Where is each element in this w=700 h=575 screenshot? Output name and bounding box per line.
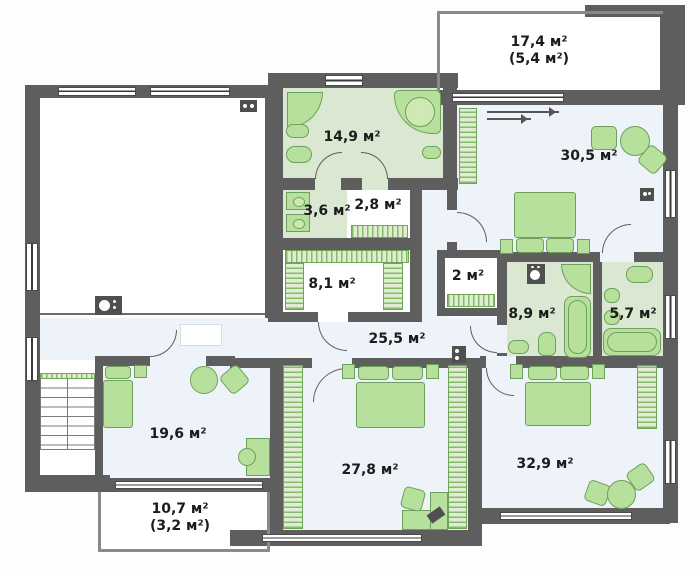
window: [452, 93, 564, 102]
wardrobe: [448, 365, 467, 529]
nightstand-icon: [426, 364, 439, 379]
boiler-icon: [95, 296, 122, 315]
balcony-parapet: [98, 549, 270, 552]
wall: [95, 363, 103, 480]
door-gap: [497, 325, 507, 353]
wardrobe-shelf: [447, 294, 495, 307]
sink-icon: [422, 146, 441, 159]
wall: [265, 85, 283, 318]
wardrobe-shelf: [285, 250, 409, 263]
washer-icon: [527, 264, 545, 284]
door-gap: [315, 178, 341, 190]
balcony-parapet: [267, 492, 270, 552]
wall: [437, 250, 445, 316]
balcony-parapet: [437, 11, 663, 14]
room-label-balcony-bottom: 10,7 м²: [152, 501, 209, 517]
nightstand-icon: [577, 239, 590, 254]
wall: [270, 363, 283, 530]
window: [262, 534, 422, 542]
floor-plan: 14,9 м² 3,6 м² 2,8 м² 8,1 м² 17,4 м² (5,…: [0, 0, 700, 575]
window: [665, 170, 676, 218]
bathtub-icon: [603, 328, 661, 356]
hall-floor: [40, 318, 497, 360]
wall: [410, 190, 422, 318]
window: [325, 75, 363, 86]
vent-icon: [640, 188, 654, 201]
window: [58, 87, 136, 96]
bidet-icon: [286, 146, 312, 163]
wall: [25, 475, 110, 492]
entry-arrow-icon: [487, 111, 559, 113]
wardrobe-shelf: [285, 263, 304, 310]
window: [150, 87, 230, 96]
room-label-bath-ensuite: 5,7 м²: [609, 306, 656, 322]
window: [26, 337, 38, 381]
room-label-wardrobe-room: 8,1 м²: [308, 276, 355, 292]
door-gap: [447, 210, 457, 242]
nightstand-icon: [342, 364, 355, 379]
wall: [230, 358, 482, 368]
wardrobe-shelf: [351, 225, 408, 238]
room-label-bedroom-middle: 27,8 м²: [342, 462, 399, 478]
wall: [447, 178, 457, 210]
window: [26, 243, 38, 291]
room-label-storage-small: 2,8 м²: [354, 197, 401, 213]
nightstand-icon: [510, 364, 523, 379]
toilet-icon: [626, 266, 653, 283]
armchair-icon: [591, 126, 617, 150]
wall: [660, 5, 685, 105]
room-sublabel-balcony-bottom: (3,2 м²): [150, 518, 210, 534]
vent-icon: [452, 346, 466, 363]
room-label-hall: 25,5 м²: [369, 331, 426, 347]
wall: [268, 73, 458, 88]
bed-blanket-icon: [525, 382, 591, 426]
room-label-bedroom-left: 19,6 м²: [150, 426, 207, 442]
bathtub-icon: [564, 296, 591, 358]
sink-icon: [604, 288, 620, 303]
room-label-balcony-top: 17,4 м²: [511, 34, 568, 50]
bed-blanket-icon: [356, 382, 425, 428]
nightstand-icon: [592, 364, 605, 379]
room-label-bath-family: 8,9 м²: [508, 306, 555, 322]
room-sublabel-balcony-top: (5,4 м²): [509, 51, 569, 67]
window: [500, 512, 632, 520]
room-label-wc: 3,6 м²: [303, 203, 350, 219]
wall: [468, 363, 482, 530]
bed-blanket-icon: [103, 380, 133, 428]
void-terrace-floor: [40, 98, 265, 315]
door-gap: [150, 356, 206, 366]
pillow-icon: [560, 366, 589, 380]
window: [665, 440, 676, 484]
room-label-bath-main: 14,9 м²: [324, 129, 381, 145]
wardrobe-shelf: [383, 263, 403, 310]
pillow-icon: [546, 238, 574, 253]
pillow-icon: [528, 366, 557, 380]
door-gap: [600, 252, 634, 262]
nightstand-icon: [134, 365, 147, 378]
hall-table: [180, 324, 222, 346]
room-label-bedroom-master: 30,5 м²: [561, 148, 618, 164]
pillow-icon: [392, 366, 423, 380]
sink-icon: [508, 340, 529, 354]
nightstand-icon: [500, 239, 513, 254]
room-label-bedroom-right: 32,9 м²: [517, 456, 574, 472]
toilet-icon: [538, 332, 556, 356]
pillow-icon: [105, 366, 131, 379]
bed-blanket-icon: [514, 192, 576, 238]
pillow-icon: [516, 238, 544, 253]
desk-chair-icon: [238, 448, 256, 466]
room-label-closet: 2 м²: [452, 268, 484, 284]
entry-arrow-icon: [487, 118, 531, 120]
door-gap: [318, 312, 348, 322]
wardrobe: [459, 108, 477, 184]
wardrobe: [637, 365, 657, 429]
wardrobe: [283, 365, 303, 529]
wall: [593, 262, 602, 360]
round-table-icon: [190, 366, 218, 394]
window: [665, 295, 676, 339]
toilet-icon: [286, 124, 309, 138]
balcony-parapet: [98, 492, 101, 552]
staircase-edge: [40, 373, 95, 379]
wall: [268, 238, 413, 250]
vent-icon: [240, 100, 257, 112]
staircase-divider: [67, 378, 68, 450]
door-gap: [362, 178, 388, 190]
pillow-icon: [358, 366, 389, 380]
balcony-parapet: [437, 11, 440, 91]
glass-door: [115, 481, 263, 489]
